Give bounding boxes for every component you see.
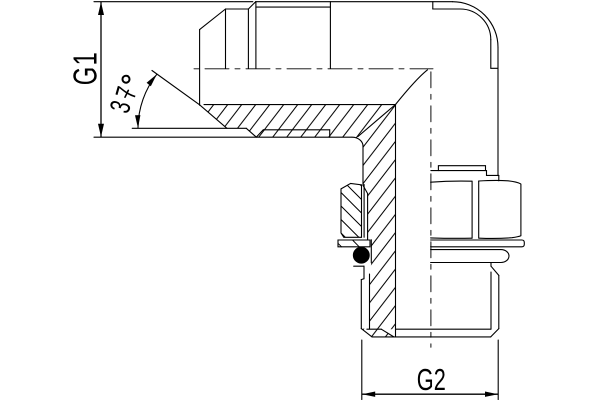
svg-text:G2: G2 bbox=[417, 362, 446, 396]
svg-text:G1: G1 bbox=[68, 51, 105, 86]
